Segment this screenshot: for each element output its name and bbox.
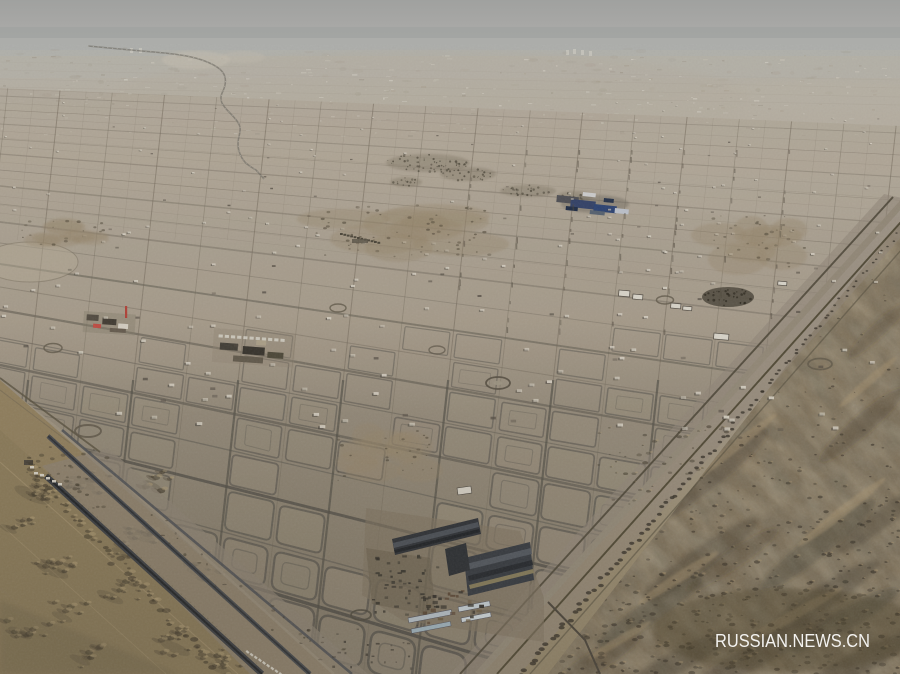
svg-text:RUSSIAN.NEWS.CN: RUSSIAN.NEWS.CN <box>715 630 870 651</box>
